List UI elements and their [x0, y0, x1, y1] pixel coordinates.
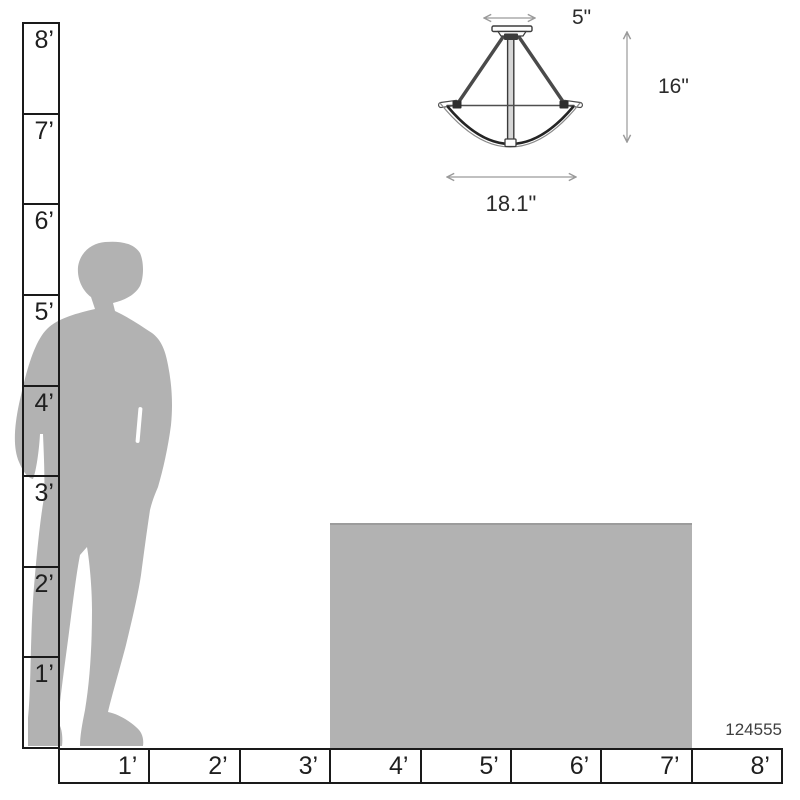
vertical-ruler-cell: 8’: [24, 24, 58, 115]
product-code: 124555: [725, 720, 782, 740]
vertical-ruler-cell: 2’: [24, 568, 58, 659]
vertical-ruler-cell: 1’: [24, 658, 58, 747]
fixture-drawing: [0, 0, 800, 800]
horizontal-ruler-cell: 2’: [150, 750, 240, 782]
vertical-ruler-cell: 7’: [24, 115, 58, 206]
horizontal-ruler-cell: 7’: [602, 750, 692, 782]
horizontal-ruler-cell: 5’: [422, 750, 512, 782]
vertical-ruler: 8’ 7’ 6’ 5’ 4’ 3’ 2’ 1’: [22, 22, 60, 749]
vertical-ruler-label: 4’: [35, 389, 54, 417]
scale-diagram: 8’ 7’ 6’ 5’ 4’ 3’ 2’ 1’ 1’ 2’ 3’ 4’ 5’ 6…: [0, 0, 800, 800]
horizontal-ruler: 1’ 2’ 3’ 4’ 5’ 6’ 7’ 8’: [58, 748, 783, 784]
horizontal-ruler-cell: 6’: [512, 750, 602, 782]
horizontal-ruler-label: 5’: [479, 754, 498, 779]
vertical-ruler-label: 6’: [35, 207, 54, 235]
horizontal-ruler-cell: 1’: [60, 750, 150, 782]
horizontal-ruler-label: 6’: [570, 754, 589, 779]
vertical-ruler-label: 3’: [35, 479, 54, 507]
horizontal-ruler-label: 1’: [118, 754, 137, 779]
vertical-ruler-label: 1’: [35, 660, 54, 688]
vertical-ruler-label: 8’: [35, 26, 54, 54]
horizontal-ruler-cell: 4’: [331, 750, 421, 782]
horizontal-ruler-label: 7’: [660, 754, 679, 779]
horizontal-ruler-label: 2’: [208, 754, 227, 779]
vertical-ruler-cell: 3’: [24, 477, 58, 568]
vertical-ruler-cell: 6’: [24, 205, 58, 296]
vertical-ruler-label: 5’: [35, 298, 54, 326]
fixture-width-label: 18.1": [470, 192, 552, 216]
horizontal-ruler-cell: 3’: [241, 750, 331, 782]
vertical-ruler-label: 7’: [35, 117, 54, 145]
horizontal-ruler-cell: 8’: [693, 750, 781, 782]
fixture-height-label: 16": [658, 75, 689, 98]
horizontal-ruler-label: 3’: [299, 754, 318, 779]
semi-flush-light-fixture: [438, 26, 583, 147]
vertical-ruler-cell: 4’: [24, 387, 58, 478]
horizontal-ruler-label: 8’: [751, 754, 770, 779]
canopy-width-label: 5": [572, 6, 591, 29]
vertical-ruler-label: 2’: [35, 570, 54, 598]
horizontal-ruler-label: 4’: [389, 754, 408, 779]
vertical-ruler-cell: 5’: [24, 296, 58, 387]
